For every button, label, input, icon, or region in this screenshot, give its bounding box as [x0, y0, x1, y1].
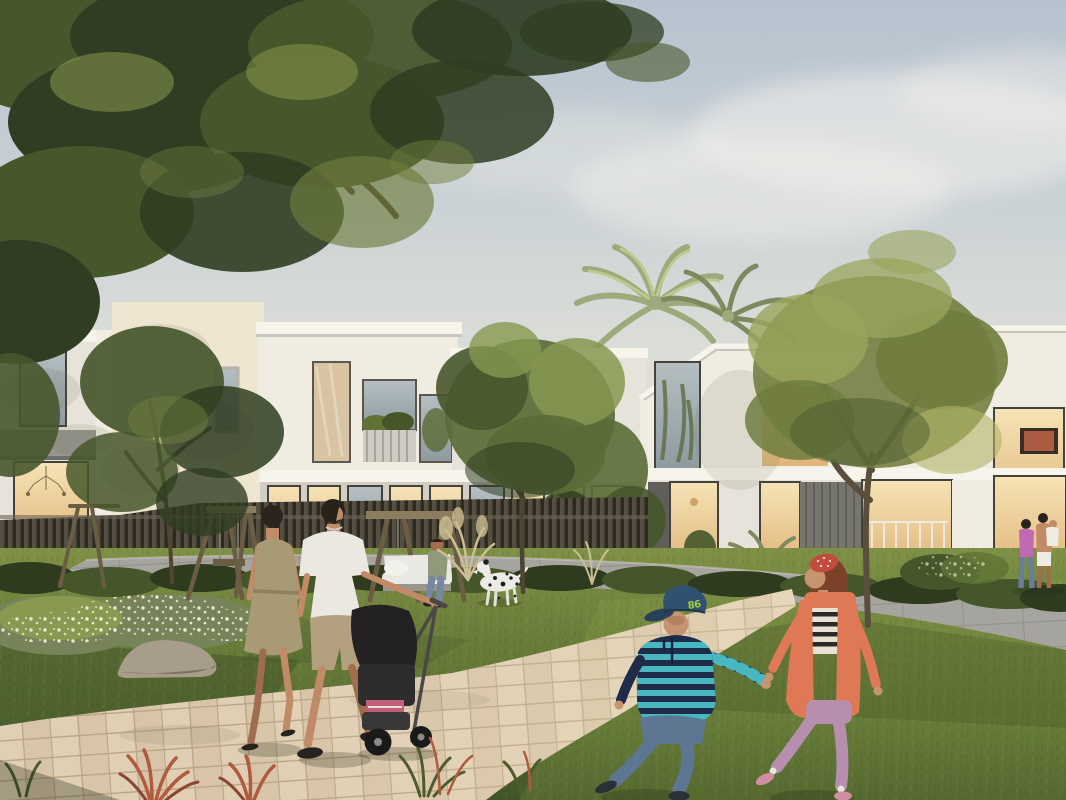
- balcony: [362, 412, 416, 462]
- render-canvas: 86: [0, 0, 1066, 800]
- woman-head: [261, 505, 283, 527]
- boy-cap-number: 86: [687, 599, 702, 612]
- stroller-canopy: [351, 605, 417, 668]
- community-render: 86: [0, 0, 1066, 800]
